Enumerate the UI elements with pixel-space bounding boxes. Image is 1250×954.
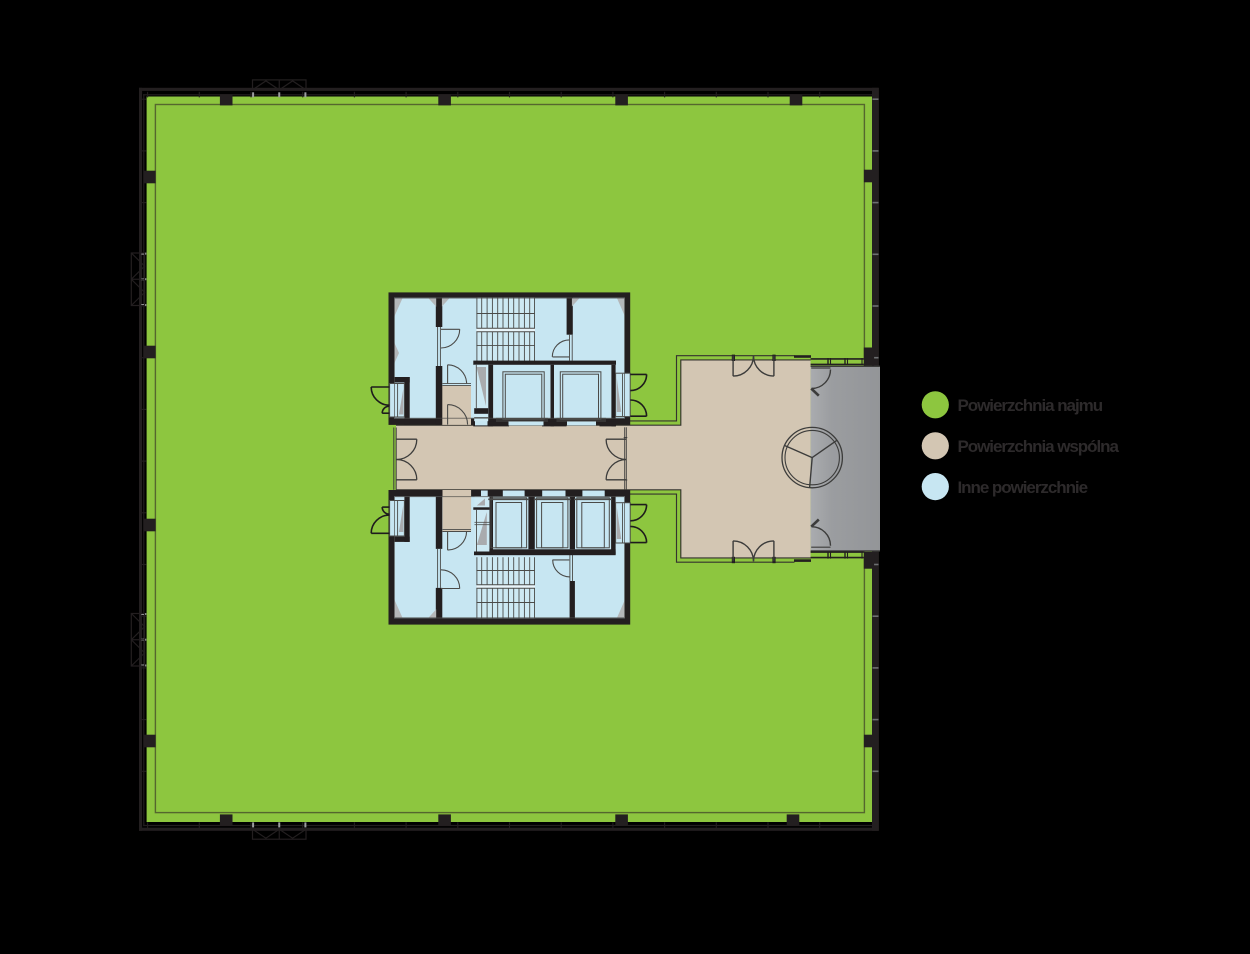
svg-text:Powierzchnia najmu: Powierzchnia najmu [958, 396, 1103, 415]
svg-text:Inne powierzchnie: Inne powierzchnie [958, 478, 1088, 497]
svg-text:Powierzchnia wspólna: Powierzchnia wspólna [958, 437, 1120, 456]
